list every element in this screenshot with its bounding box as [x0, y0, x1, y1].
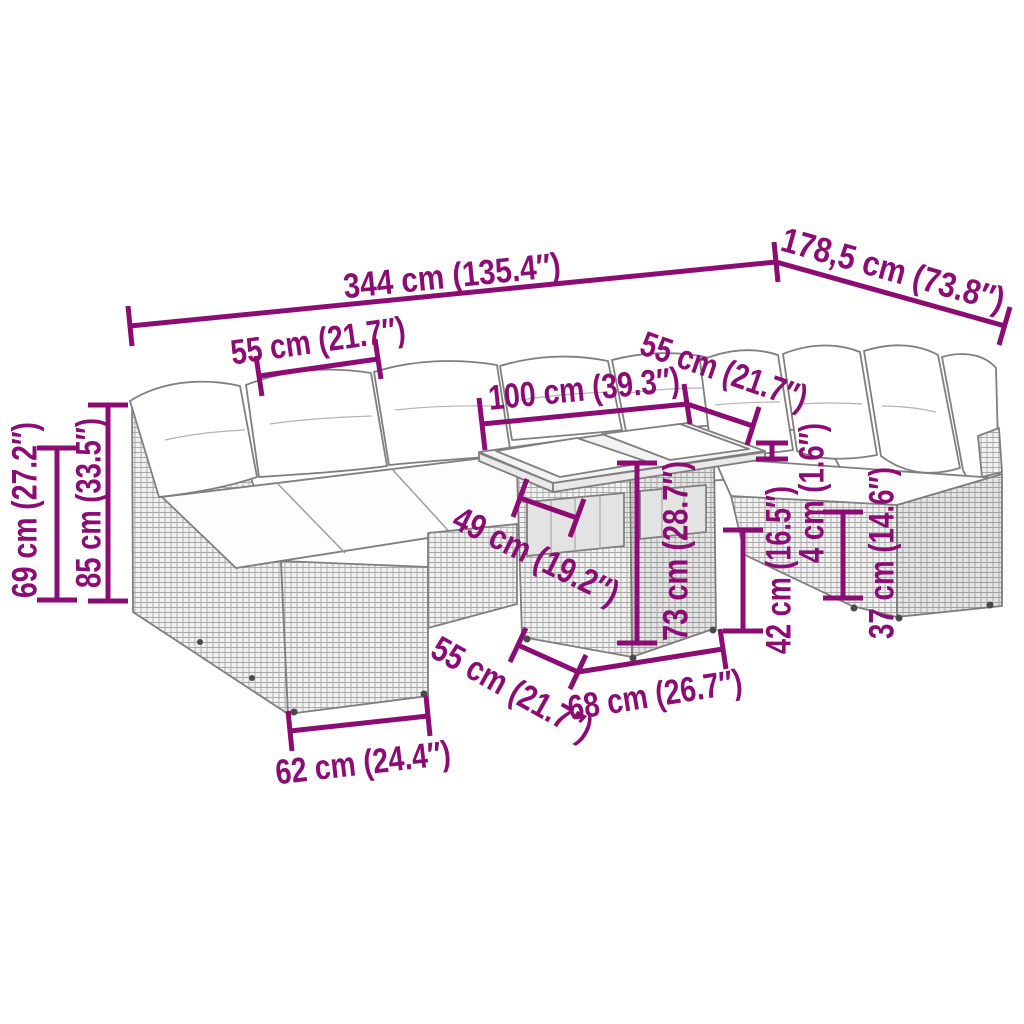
dimension-armrest-base-width-label: 62 cm (24.4″) — [273, 734, 452, 793]
sofa-foot — [249, 675, 255, 681]
furniture-dimension-diagram: 344 cm (135.4″) 178,5 cm (73.8″) 55 cm (… — [0, 0, 1024, 1024]
sofa-foot — [987, 602, 994, 609]
back-cushion — [246, 370, 387, 477]
dimension-total-width: 344 cm (135.4″) — [128, 242, 778, 346]
dimension-total-width-label: 344 cm (135.4″) — [342, 246, 563, 306]
sofa-foot — [291, 709, 298, 716]
dimension-total-depth: 178,5 cm (73.8″) — [776, 220, 1010, 345]
dimension-diagram-page: 344 cm (135.4″) 178,5 cm (73.8″) 55 cm (… — [0, 0, 1024, 1024]
sofa-foot — [197, 639, 203, 645]
table-foot — [710, 627, 717, 634]
sofa-foot — [851, 605, 858, 612]
armrest-post — [978, 428, 1002, 477]
dimension-seat-height-label: 42 cm (16.5″) — [760, 486, 799, 654]
dimension-table-height-label: 73 cm (28.7″) — [657, 461, 696, 641]
left-base-front — [281, 561, 428, 714]
dimension-total-height-label: 85 cm (33.5″) — [70, 418, 109, 588]
dimension-base-height-label: 37 cm (14.6″) — [863, 467, 902, 639]
dimension-total-height: 85 cm (33.5″) — [70, 405, 129, 601]
dimension-back-height: 69 cm (27.2″) — [6, 422, 78, 600]
dimension-back-height-label: 69 cm (27.2″) — [6, 422, 45, 598]
